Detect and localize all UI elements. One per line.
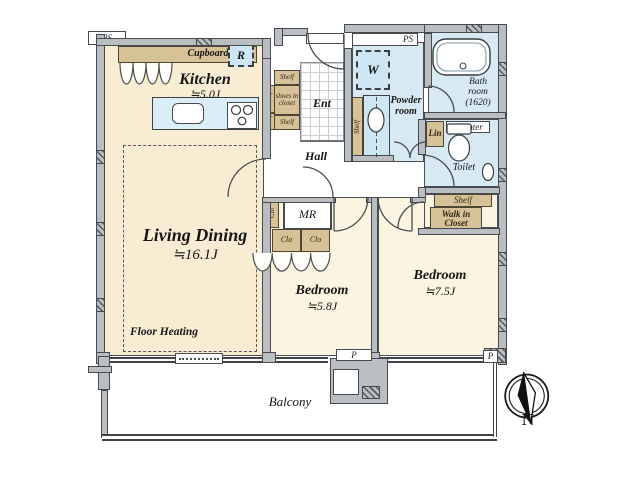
pipe-space-top-right: PS bbox=[352, 33, 418, 46]
wall bbox=[418, 228, 500, 235]
pipe-shaft-label: P bbox=[351, 351, 357, 360]
room-area-kitchen: ≒5.0J bbox=[150, 88, 260, 101]
shoe-shelf-top: Shelf bbox=[274, 70, 300, 85]
pipe-block-hatch bbox=[362, 386, 380, 399]
closet-2: Clo bbox=[301, 229, 330, 252]
toilet-counter: Counter bbox=[446, 121, 490, 133]
wall-hatch bbox=[96, 150, 105, 164]
wall bbox=[282, 28, 308, 36]
room-label-balcony: Balcony bbox=[252, 395, 328, 409]
wall-hatch bbox=[196, 38, 212, 46]
pipe-space-label: PS bbox=[403, 35, 413, 44]
room-label-kitchen: Kitchen bbox=[150, 71, 260, 88]
shelf-label: Shelf bbox=[280, 74, 294, 81]
room-label-living-dining: Living Dining bbox=[128, 226, 262, 245]
storage-room-label: MR bbox=[299, 208, 316, 220]
floor-heating-label: Floor Heating bbox=[130, 326, 250, 338]
room-label-bedroom-large: Bedroom bbox=[398, 268, 482, 283]
wall bbox=[262, 58, 271, 159]
room-label-bedroom-small: Bedroom bbox=[278, 283, 366, 298]
window bbox=[110, 357, 175, 363]
wall-hatch bbox=[498, 168, 507, 182]
refrigerator-label: R bbox=[237, 48, 245, 63]
wall-hatch bbox=[466, 24, 482, 33]
room-area-bedroom-large: ≒7.5J bbox=[398, 285, 482, 298]
room-area-bedroom-small: ≒5.8J bbox=[278, 300, 366, 313]
shoe-shelf-bottom: Shelf bbox=[274, 115, 300, 130]
room-area-living-dining: ≒16.1J bbox=[128, 247, 262, 263]
wall bbox=[344, 24, 434, 33]
balcony-wall bbox=[88, 366, 112, 373]
wall-post bbox=[262, 352, 276, 363]
linen-cabinet: Lin bbox=[426, 121, 444, 147]
balcony-wall bbox=[101, 390, 108, 438]
room-label-hall: Hall bbox=[296, 150, 336, 163]
window bbox=[223, 357, 262, 363]
wall bbox=[424, 33, 432, 88]
wall-hatch bbox=[96, 222, 105, 236]
wall-hatch bbox=[498, 62, 507, 76]
shelf-label: Shelf bbox=[454, 196, 472, 205]
kitchen-stove bbox=[227, 102, 257, 129]
pipe-block-inner bbox=[333, 369, 359, 395]
closet-1: Clo bbox=[272, 229, 301, 252]
washing-machine-box: W bbox=[356, 50, 390, 90]
floor-plan: Cupboard R Shelf shoes in closet Shelf S… bbox=[0, 0, 640, 480]
wall-hatch bbox=[498, 252, 507, 266]
wall bbox=[344, 48, 352, 162]
shoes-in-closet-label: shoes in closet bbox=[275, 93, 299, 108]
compass-north-label: N bbox=[516, 411, 540, 429]
refrigerator-box: R bbox=[228, 44, 254, 67]
vanity-counter bbox=[363, 95, 390, 159]
counter-label: Counter bbox=[453, 123, 483, 132]
shoes-in-closet: shoes in closet bbox=[274, 85, 300, 115]
powder-shelf: Shelf bbox=[352, 97, 363, 157]
shelf-label: Shelf bbox=[280, 119, 294, 126]
balcony-wall bbox=[98, 356, 110, 390]
closet-label: Clo bbox=[281, 236, 293, 244]
pipe-shaft-label: P bbox=[488, 352, 494, 361]
wall-hatch bbox=[96, 298, 105, 312]
linen-label: Lin bbox=[428, 129, 441, 138]
shutter-dots bbox=[179, 358, 219, 360]
room-label-toilet: Toilet bbox=[444, 163, 484, 174]
closet-label: Clo bbox=[310, 236, 322, 244]
balcony-rail bbox=[102, 434, 497, 441]
wall bbox=[352, 155, 394, 162]
kitchen-sink bbox=[172, 103, 204, 124]
wall bbox=[262, 197, 271, 357]
wall-hatch bbox=[498, 318, 507, 332]
pipe-shaft-right: P bbox=[483, 350, 498, 363]
washing-machine-label: W bbox=[367, 62, 379, 78]
wall bbox=[96, 38, 271, 46]
wall bbox=[424, 187, 500, 194]
storage-door-arc bbox=[303, 167, 333, 197]
window bbox=[380, 357, 484, 363]
wall bbox=[262, 197, 336, 203]
balcony-rail-right bbox=[493, 363, 497, 437]
wic-shelf: Shelf bbox=[434, 194, 492, 207]
wall bbox=[424, 112, 506, 119]
entrance-step bbox=[306, 33, 344, 44]
wall bbox=[410, 197, 426, 203]
wall bbox=[418, 119, 426, 155]
wall bbox=[371, 197, 378, 357]
wic-label: Walk in Closet bbox=[431, 210, 481, 229]
pipe-shaft-mid: P bbox=[336, 349, 372, 361]
room-label-bath: Bath room (1620) bbox=[458, 77, 498, 108]
window bbox=[276, 357, 328, 363]
room-label-powder: Powder room bbox=[388, 96, 424, 118]
shelf-label: Shelf bbox=[354, 120, 361, 134]
room-label-entrance: Ent bbox=[302, 97, 342, 110]
